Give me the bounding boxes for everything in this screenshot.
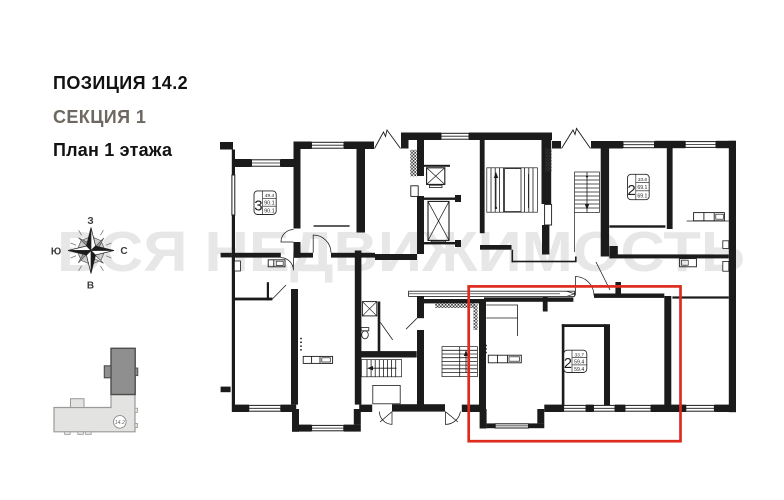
svg-text:33.6: 33.6 [638,177,648,183]
svg-text:90.1: 90.1 [264,208,275,214]
svg-text:ВСЯ НЕДВИЖИМОСТЬ: ВСЯ НЕДВИЖИМОСТЬ [57,220,745,284]
svg-text:З: З [87,216,93,227]
svg-text:49.4: 49.4 [265,193,275,199]
svg-text:3: 3 [254,198,262,215]
svg-text:СЕКЦИЯ 1: СЕКЦИЯ 1 [53,107,146,127]
svg-text:В: В [87,281,94,292]
svg-text:69.1: 69.1 [637,194,647,200]
svg-text:59.4: 59.4 [574,360,584,366]
svg-text:Ю: Ю [51,247,61,258]
svg-text:С: С [120,246,127,257]
svg-text:69.1: 69.1 [637,185,647,191]
svg-text:План 1 этажа: План 1 этажа [53,140,173,160]
svg-text:90.1: 90.1 [264,201,275,207]
svg-text:33.7: 33.7 [575,352,585,358]
svg-text:2: 2 [564,356,572,372]
svg-text:14.2: 14.2 [115,420,125,426]
svg-text:ПОЗИЦИЯ 14.2: ПОЗИЦИЯ 14.2 [53,73,188,93]
svg-text:2: 2 [627,182,635,199]
svg-text:59.4: 59.4 [574,367,584,373]
